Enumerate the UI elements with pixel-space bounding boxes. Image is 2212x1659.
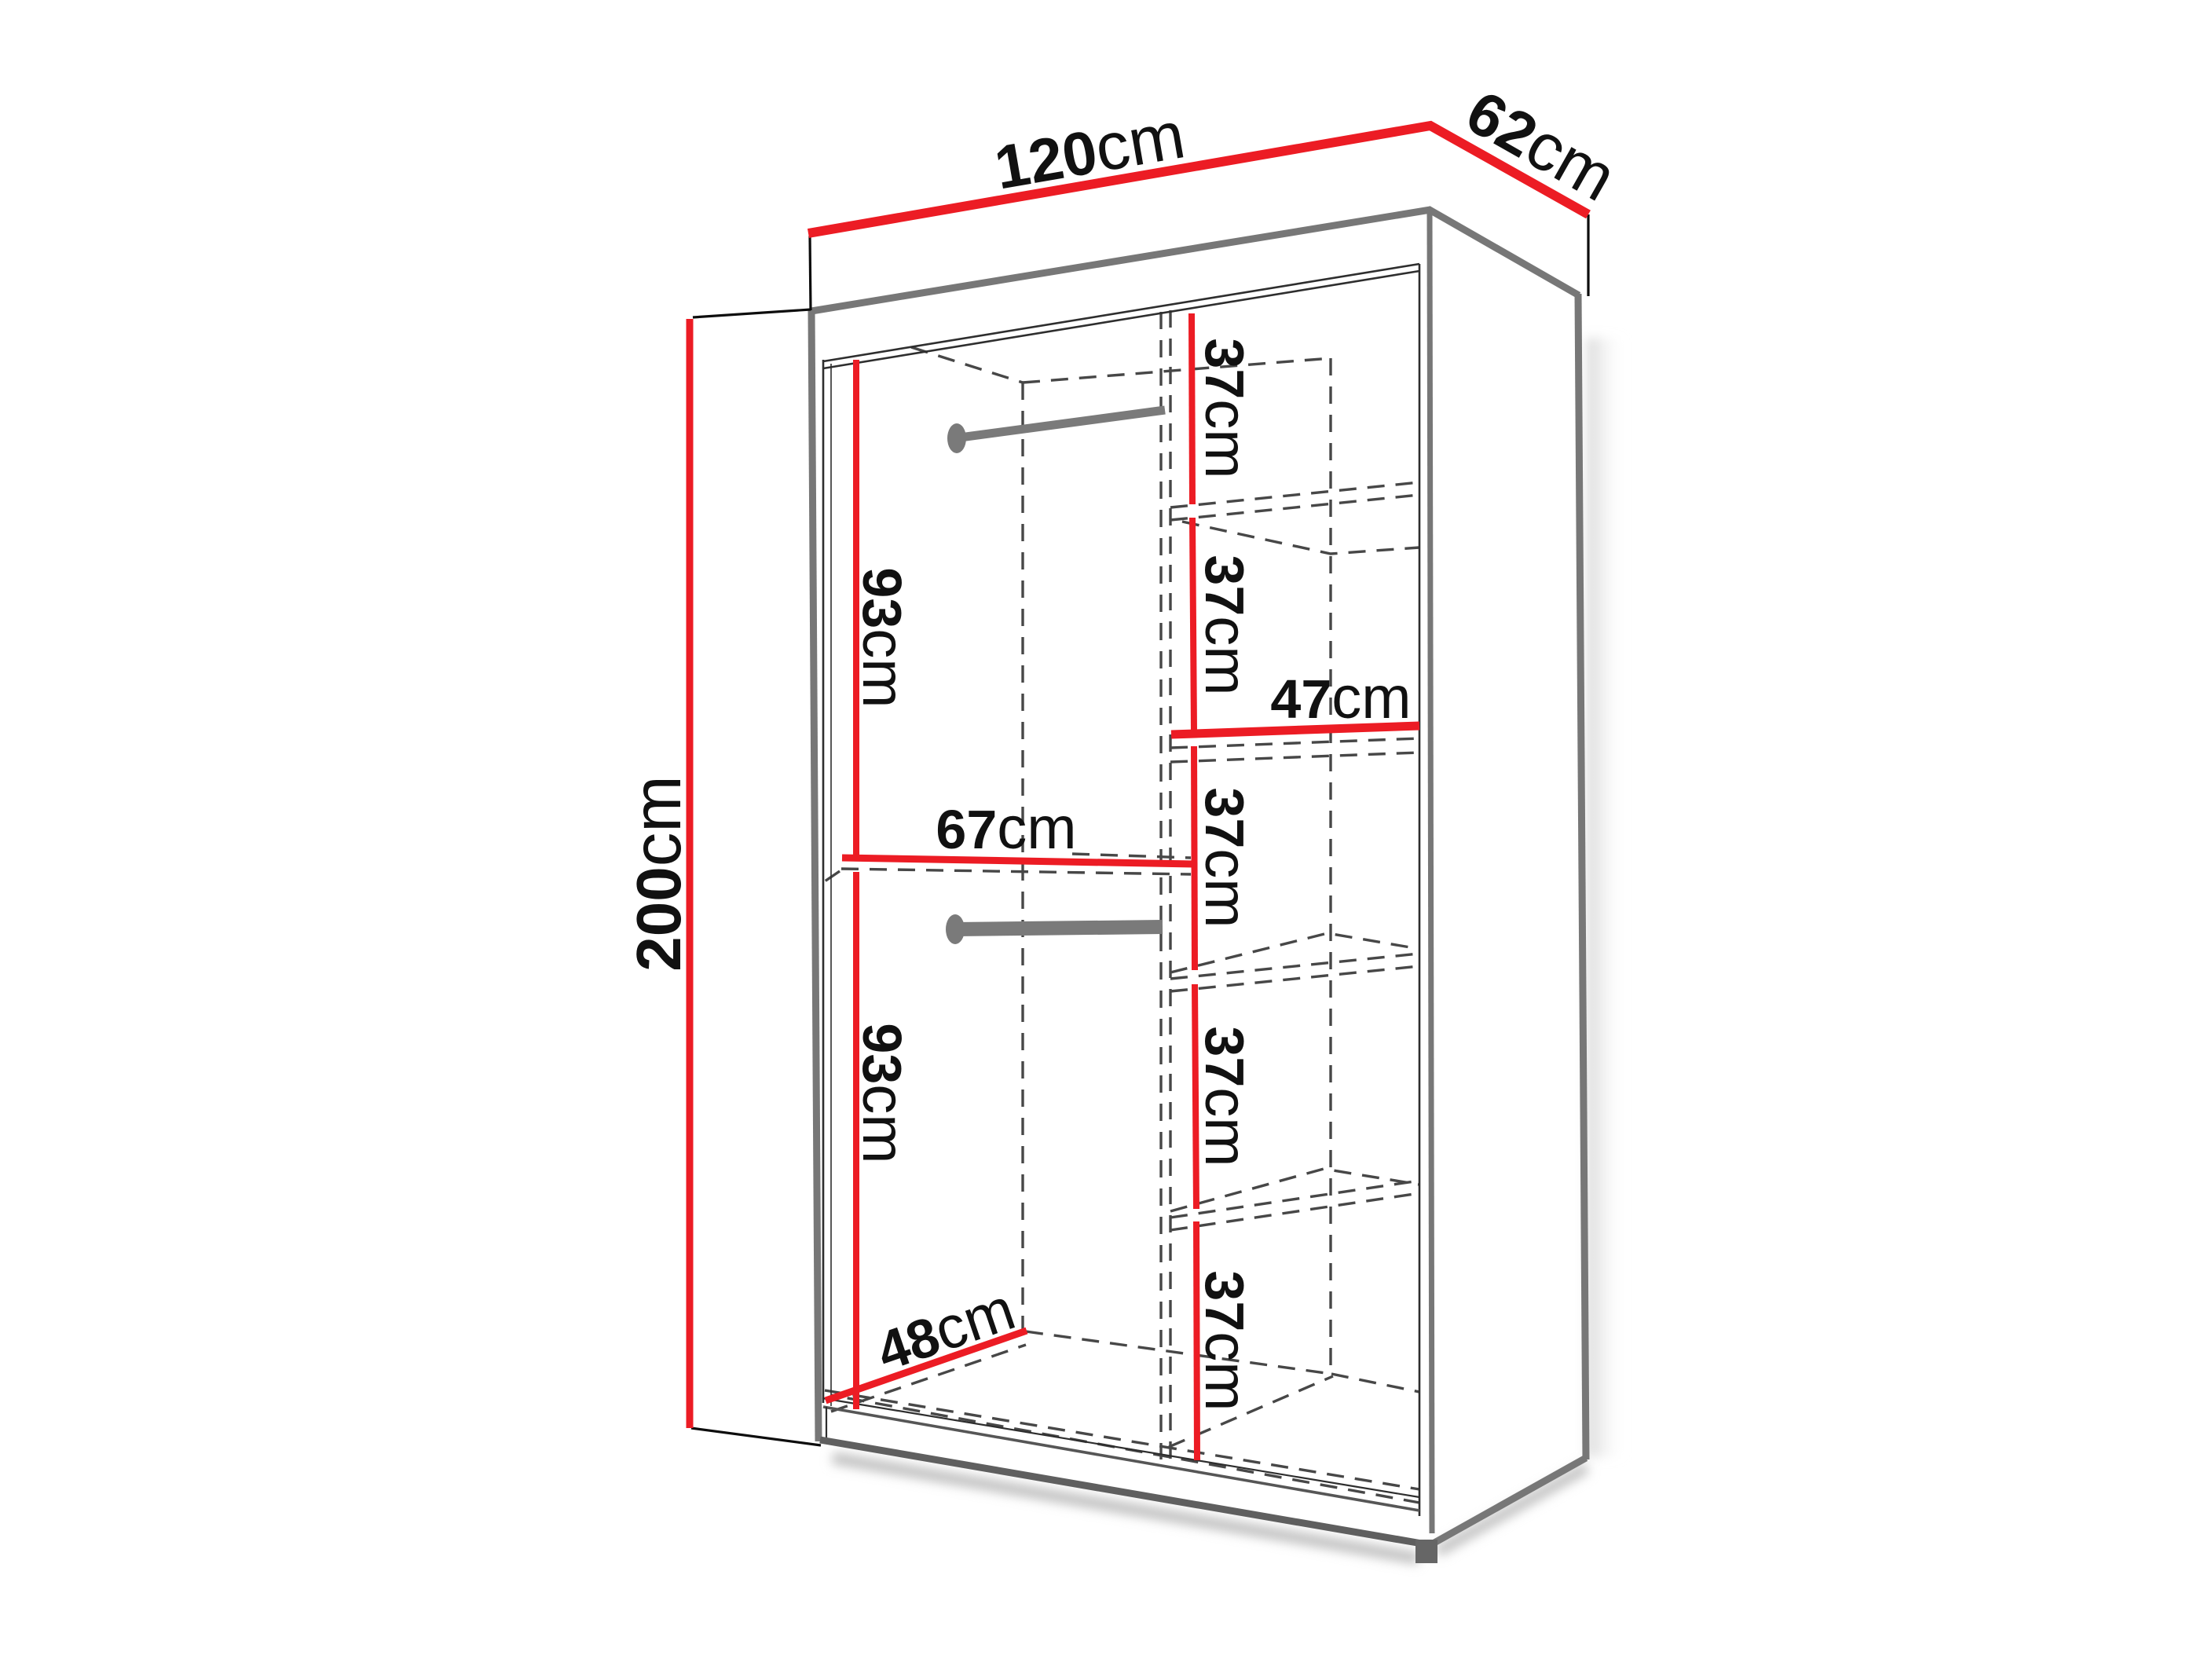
svg-text:200cm: 200cm — [619, 775, 695, 971]
svg-text:37cm: 37cm — [1192, 338, 1259, 478]
svg-text:93cm: 93cm — [850, 1023, 917, 1163]
svg-text:37cm: 37cm — [1192, 787, 1259, 928]
svg-text:67cm: 67cm — [936, 795, 1076, 862]
svg-text:37cm: 37cm — [1192, 1270, 1259, 1411]
svg-text:37cm: 37cm — [1192, 1026, 1259, 1166]
svg-text:47cm: 47cm — [1270, 665, 1411, 731]
svg-text:93cm: 93cm — [850, 567, 917, 708]
svg-text:37cm: 37cm — [1192, 555, 1259, 695]
